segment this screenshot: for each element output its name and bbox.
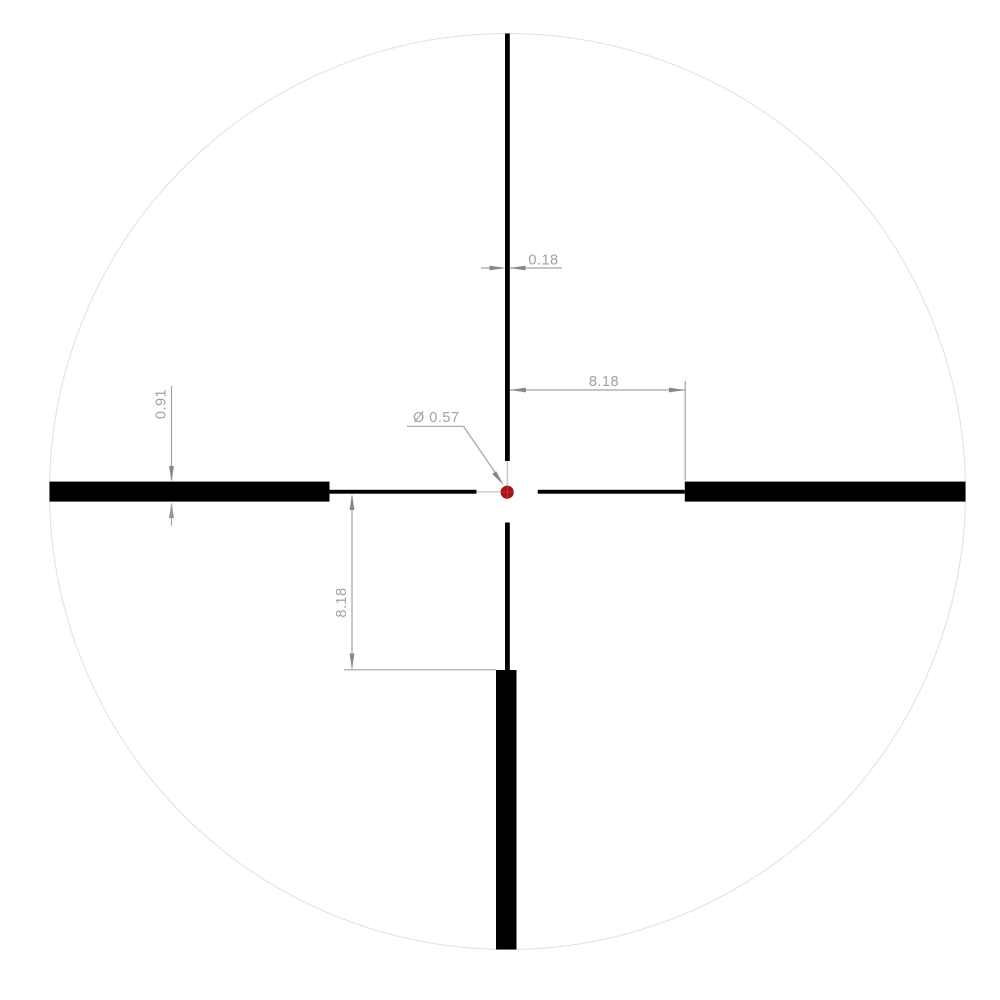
svg-text:8.18: 8.18: [334, 587, 350, 617]
svg-text:8.18: 8.18: [589, 374, 619, 390]
svg-text:0.91: 0.91: [154, 389, 170, 419]
svg-text:Ø 0.57: Ø 0.57: [413, 410, 460, 426]
svg-text:0.18: 0.18: [528, 253, 558, 269]
